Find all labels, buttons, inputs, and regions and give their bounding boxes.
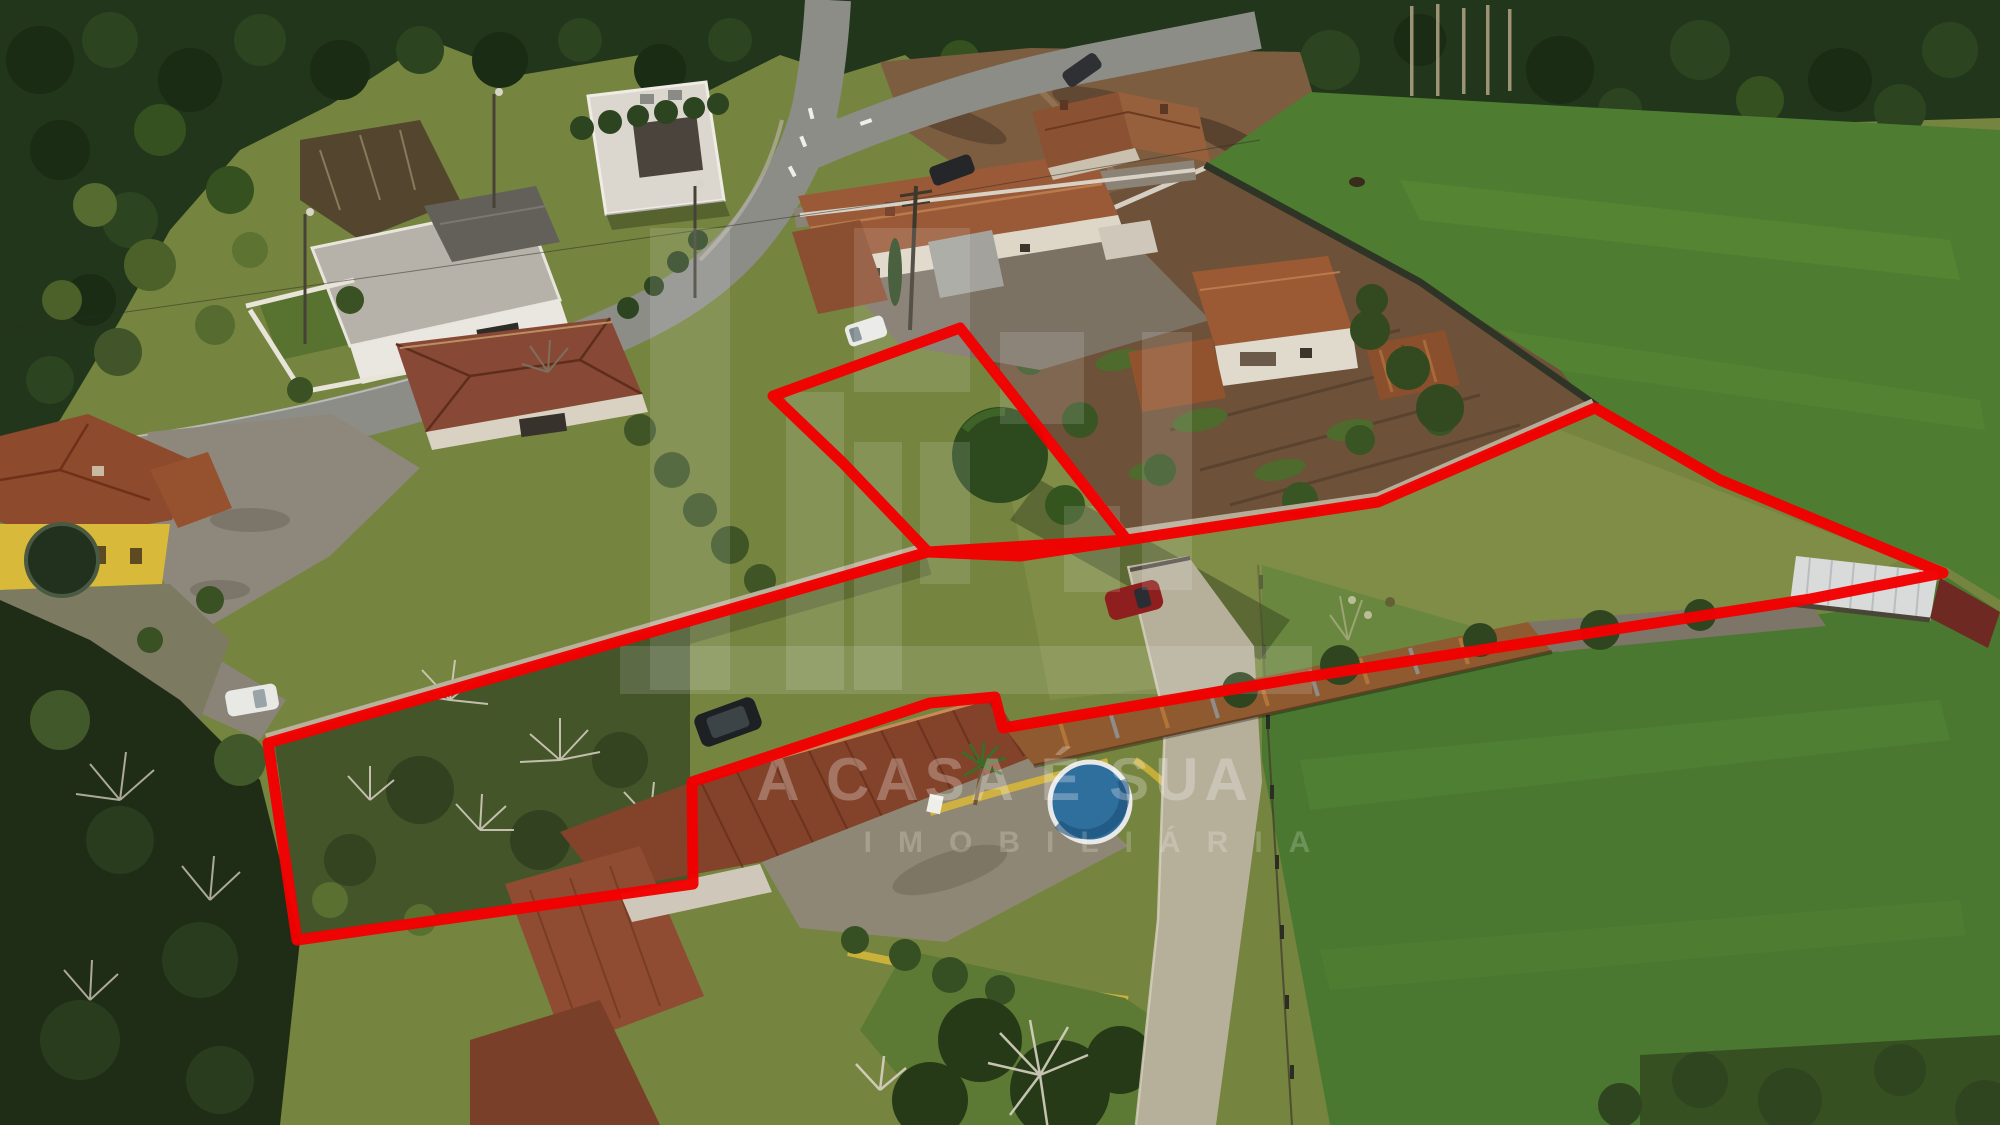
watermark-subtitle-text: IMOBILIÁRIA <box>864 825 1337 859</box>
aerial-photo: A CASA É SUA IMOBILIÁRIA <box>0 0 2000 1125</box>
watermark-brand-text: A CASA É SUA <box>756 746 1254 813</box>
screenshot-root: A CASA É SUA IMOBILIÁRIA <box>0 0 2000 1125</box>
trampoline <box>26 524 98 596</box>
